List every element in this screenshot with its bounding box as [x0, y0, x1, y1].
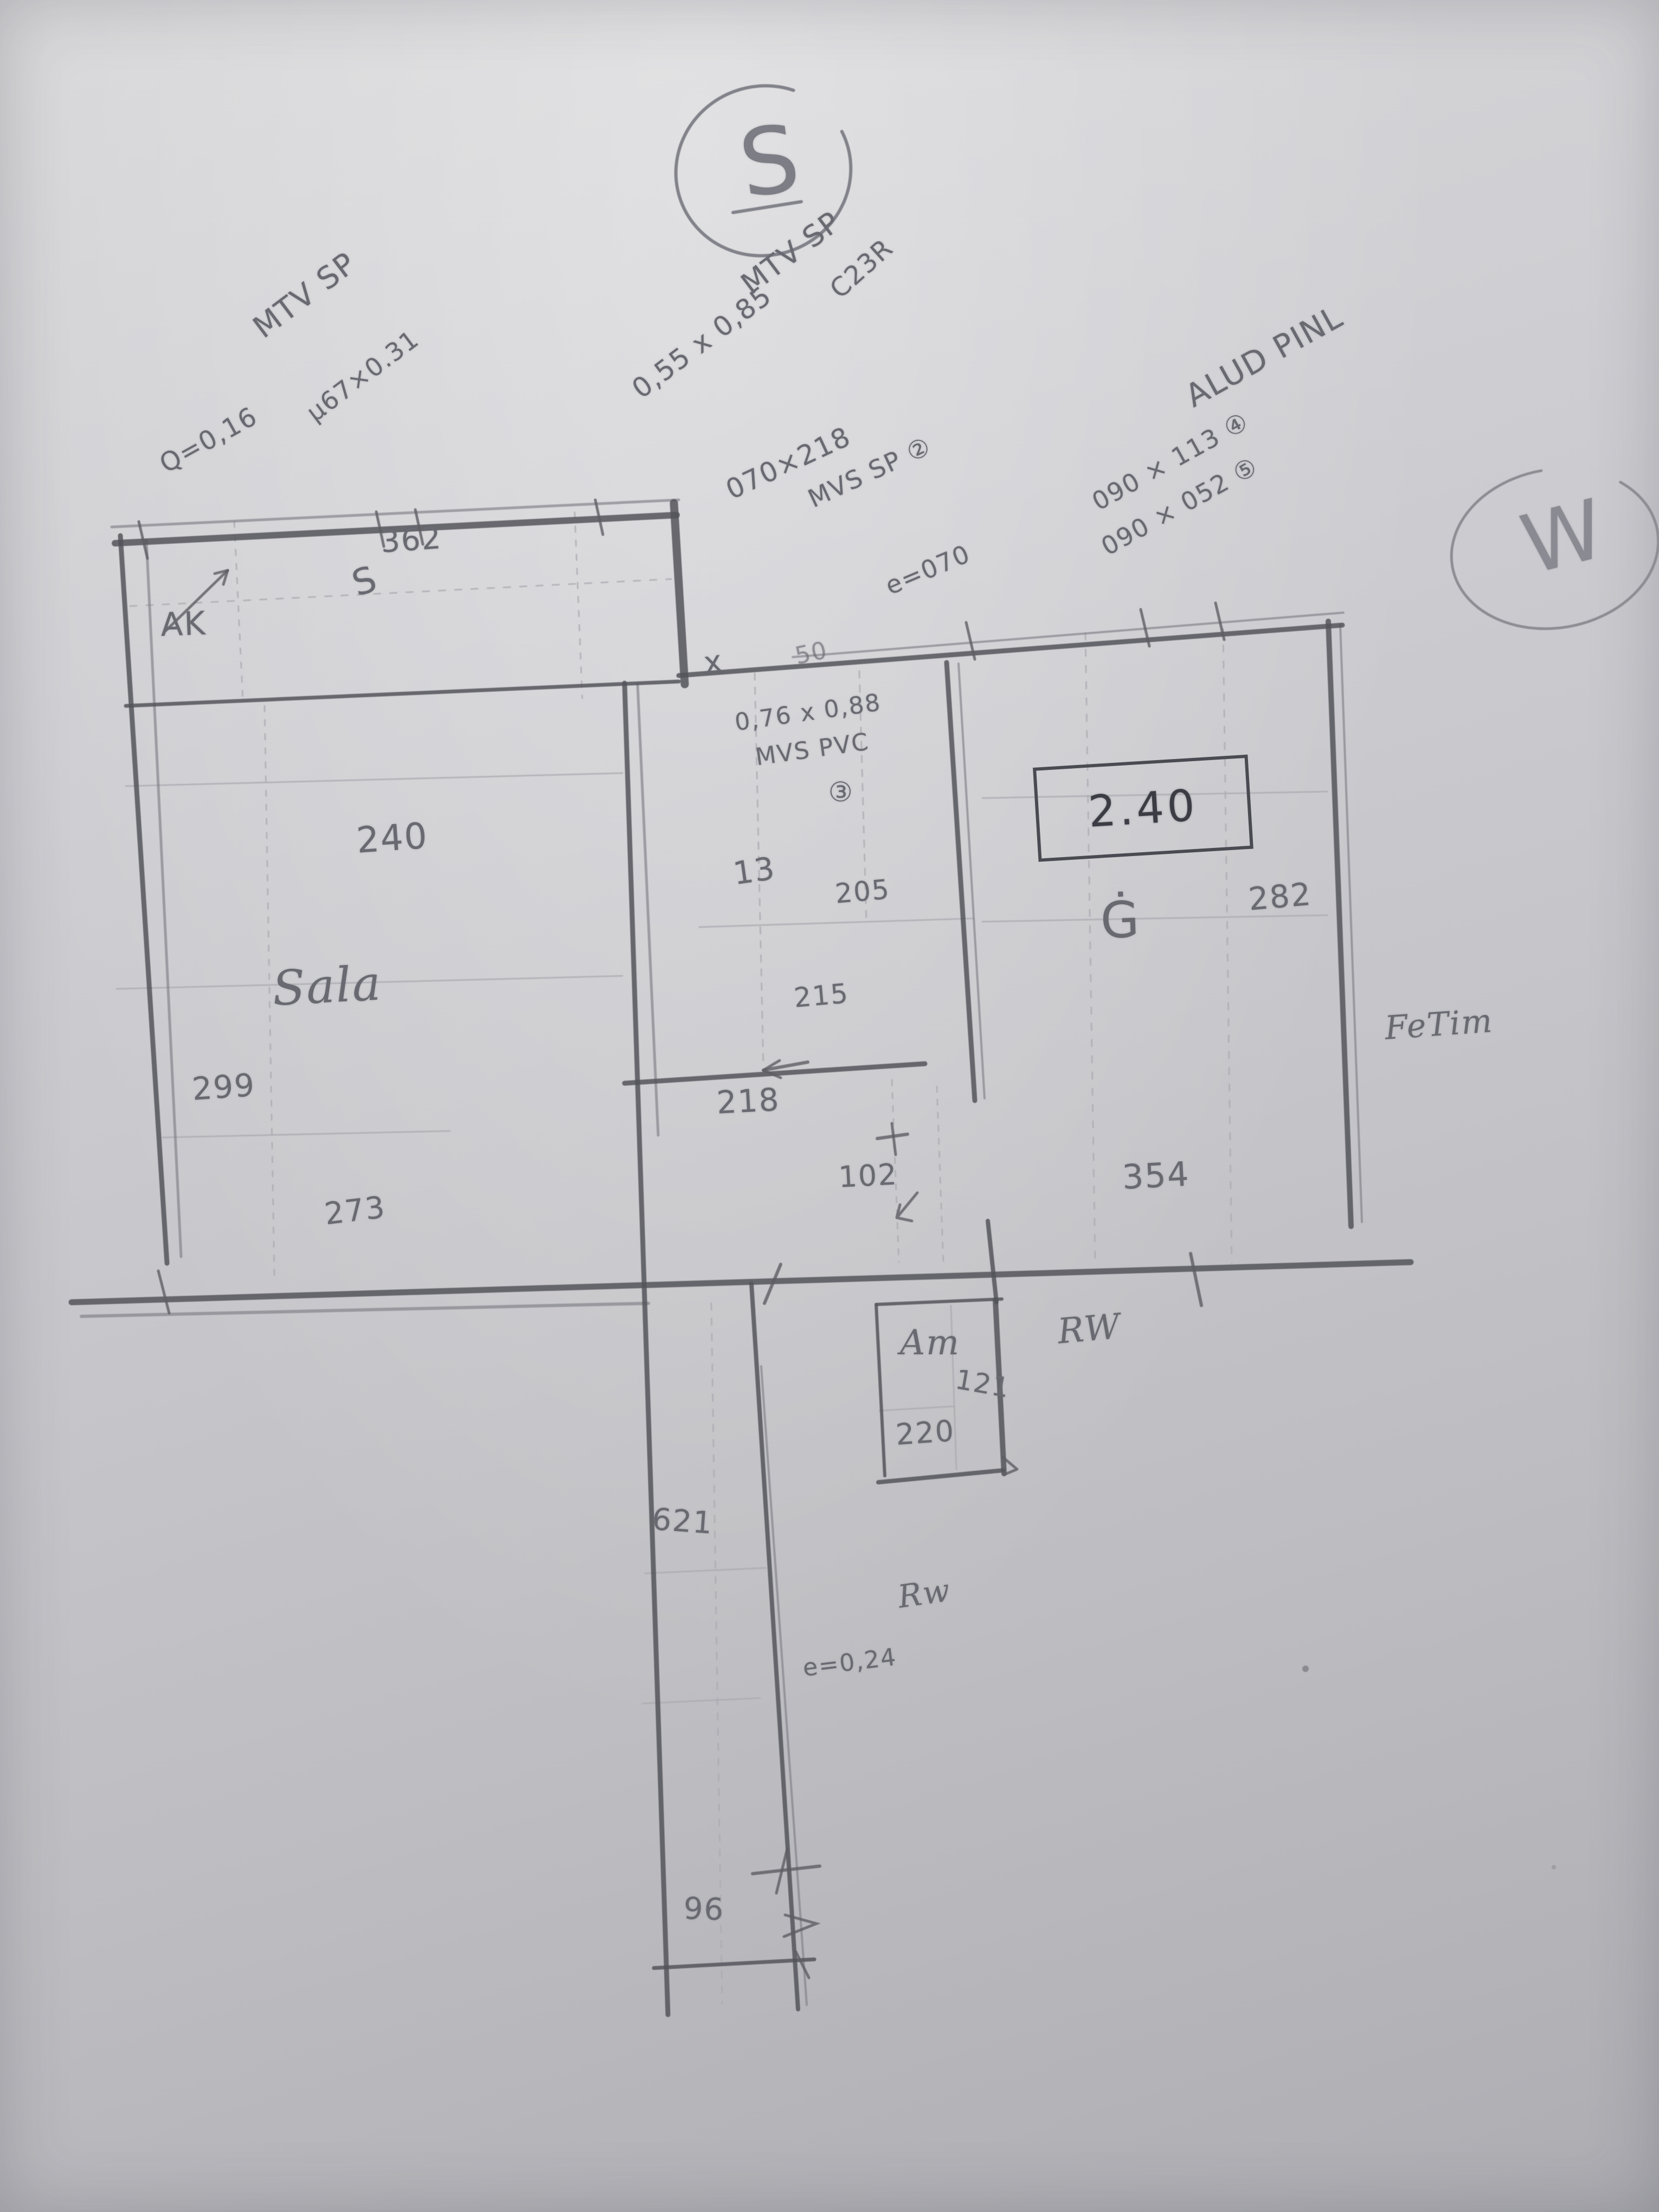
dim-strip-width: 362 [380, 520, 443, 560]
dim-hall-102: 102 [838, 1157, 898, 1194]
dim-sala-left: 299 [191, 1066, 256, 1108]
dim-am-bottom: 220 [895, 1413, 956, 1451]
dim-sala-bottom: 273 [323, 1189, 388, 1232]
paper-sketch: { "compass": { "south": "S", "west": "W"… [0, 0, 1659, 2212]
right-room-height-box: 2.40 [1033, 755, 1253, 862]
dim-mid-215: 215 [793, 978, 850, 1014]
dim-corridor-96: 96 [683, 1891, 725, 1928]
mid-room-label: 13 [731, 850, 778, 892]
right-room-height-value: 2.40 [1087, 780, 1199, 837]
note-mvs-pvc-mark: ③ [828, 776, 854, 808]
dim-sala-height: 240 [355, 815, 429, 861]
note-fetim: FeTim [1384, 1002, 1494, 1047]
dim-mid-205: 205 [834, 873, 891, 910]
note-rw-upper: RW [1056, 1307, 1123, 1352]
dim-mid-bottom: 218 [716, 1081, 781, 1121]
dim-right-282: 282 [1247, 876, 1313, 918]
strip-label: AK [160, 605, 207, 644]
dim-right-bottom: 354 [1121, 1154, 1191, 1197]
dim-corridor-621: 621 [651, 1502, 714, 1541]
room-name-sala: Sala [271, 955, 383, 1016]
note-rw-lower: Rw [896, 1571, 953, 1615]
room-name-am: Am [900, 1323, 960, 1363]
plan-linework [0, 0, 1659, 2212]
right-room-g-mark: Ġ [1099, 890, 1141, 949]
